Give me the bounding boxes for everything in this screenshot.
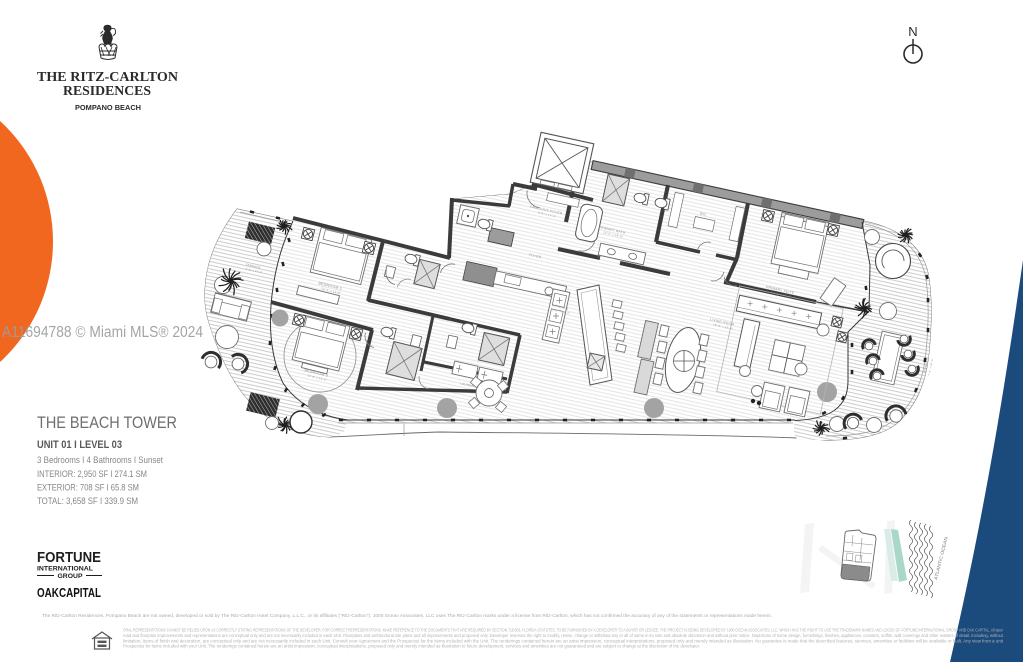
svg-text:TOTAL: 3,658 SF I 339.9 SM: TOTAL: 3,658 SF I 339.9 SM	[37, 496, 138, 506]
svg-text:THE BEACH TOWER: THE BEACH TOWER	[37, 413, 177, 432]
svg-text:ATLANTIC OCEAN: ATLANTIC OCEAN	[933, 536, 948, 580]
svg-text:UNIT 01 I LEVEL 03: UNIT 01 I LEVEL 03	[37, 439, 122, 451]
svg-text:ORAL REPRESENTATIONS CANNOT BE: ORAL REPRESENTATIONS CANNOT BE RELIED UP…	[123, 628, 1004, 633]
svg-text:FORTUNE: FORTUNE	[37, 550, 101, 566]
svg-text:RESIDENCES: RESIDENCES	[63, 83, 151, 98]
svg-text:N: N	[908, 24, 917, 39]
svg-text:INTERIOR: 2,950 SF I 274.1 SM: INTERIOR: 2,950 SF I 274.1 SM	[37, 469, 147, 479]
svg-text:limitation, items of finish an: limitation, items of finish and decorati…	[123, 638, 1004, 643]
svg-text:road and floorplan improvement: road and floorplan improvements and repr…	[123, 633, 1004, 638]
svg-text:EXTERIOR: 708 SF I 65.8 SM: EXTERIOR: 708 SF I 65.8 SM	[37, 483, 139, 493]
svg-text:POMPANO BEACH: POMPANO BEACH	[75, 105, 141, 112]
svg-text:A11694788 © Miami MLS® 2024: A11694788 © Miami MLS® 2024	[2, 324, 203, 341]
svg-text:GROUP: GROUP	[58, 574, 83, 580]
svg-text:The Ritz-Carlton Residences, P: The Ritz-Carlton Residences, Pompano Bea…	[42, 613, 772, 618]
svg-text:OAKCAPITAL: OAKCAPITAL	[37, 585, 101, 600]
svg-text:3 Bedrooms I 4 Bathrooms I Sun: 3 Bedrooms I 4 Bathrooms I Sunset	[37, 455, 163, 465]
svg-text:INTERNATIONAL: INTERNATIONAL	[37, 567, 93, 573]
svg-text:Prospectus for items included: Prospectus for items included with your …	[123, 644, 700, 649]
